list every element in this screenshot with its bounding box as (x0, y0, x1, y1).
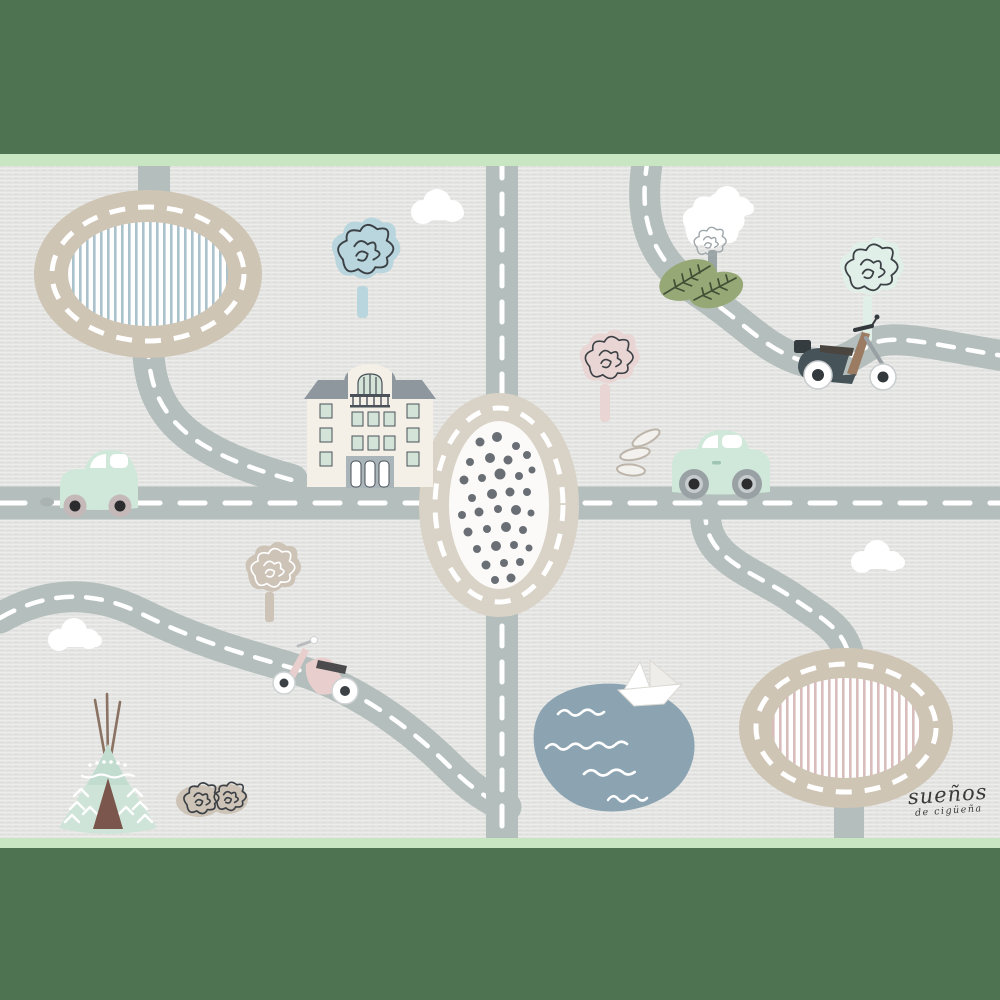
apartment-building (304, 364, 436, 488)
striped-roundabout-blue (34, 190, 262, 358)
exhaust-puff (40, 498, 54, 507)
playmat-illustration (0, 0, 1000, 1000)
dotted-roundabout (419, 393, 579, 617)
playmat-product-image: sueños de cigüeña (0, 0, 1000, 1000)
